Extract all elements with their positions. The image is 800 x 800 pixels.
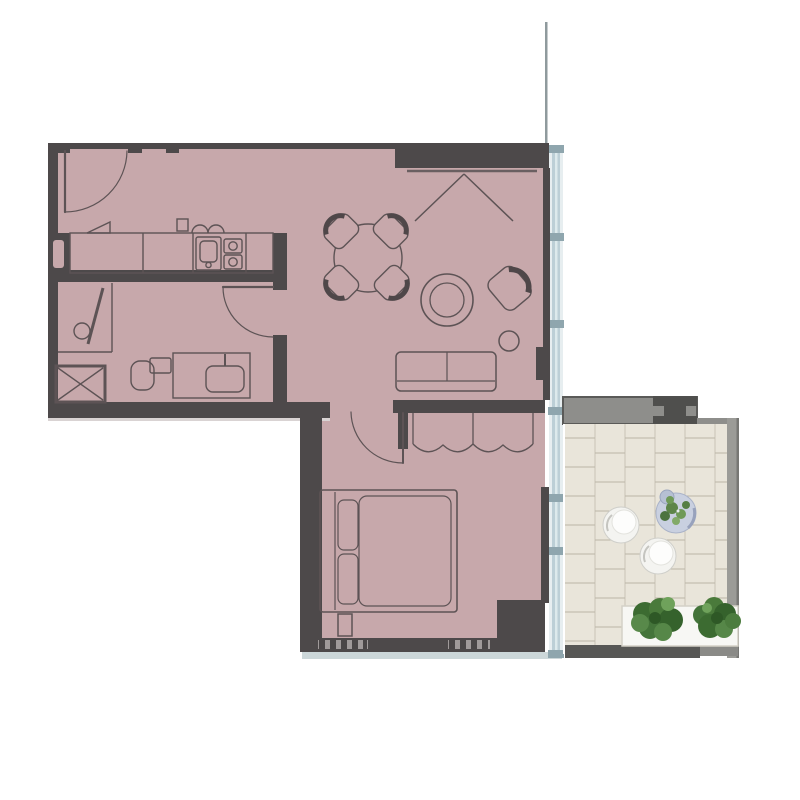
bush-leaf <box>711 612 723 624</box>
leaf <box>672 517 680 525</box>
leaf-highlight <box>677 510 680 513</box>
wall-right-stub <box>536 347 550 380</box>
door-jamb-tick <box>166 143 179 153</box>
balcony <box>563 396 741 658</box>
bush-leaf <box>631 614 649 632</box>
wall-shadow-band <box>48 418 330 421</box>
wall-top-right-block <box>395 143 549 168</box>
wall-bedroom-left <box>300 405 322 652</box>
leaf <box>660 511 670 521</box>
wall-bedroom-right-thin <box>541 487 549 603</box>
wall-living-bottom <box>393 400 545 413</box>
balcony-lounge-chair <box>640 538 676 574</box>
shaft-inner-slot <box>53 240 64 268</box>
leaf <box>666 496 674 504</box>
wall-bath-bottom <box>48 402 330 418</box>
mullion <box>548 547 564 555</box>
lounge-chair-inner <box>649 541 673 565</box>
glass-facade <box>548 145 564 658</box>
column-waist <box>664 406 686 417</box>
bush-leaf <box>702 603 712 613</box>
leaf <box>682 501 690 509</box>
bush-leaf <box>661 597 675 611</box>
bush-leaf <box>654 623 672 641</box>
wall-top <box>48 143 400 149</box>
balcony-bottom-wall <box>565 645 700 658</box>
floor-plan-drawing <box>0 0 800 800</box>
mullion <box>548 407 564 415</box>
wall-kitchen-bath <box>48 270 287 282</box>
mullion <box>548 145 564 153</box>
wall-bath-right-upper <box>273 233 287 290</box>
bush-leaf <box>649 612 661 624</box>
lounge-chair-inner <box>612 510 636 534</box>
bush-leaf <box>725 613 741 629</box>
sofa <box>396 352 496 391</box>
column-top-bar <box>653 396 697 406</box>
mullion <box>548 650 564 658</box>
exterior-lower-band <box>302 652 562 659</box>
mullion <box>548 233 564 241</box>
door-jamb-tick <box>128 143 142 153</box>
column-bottom-bar <box>653 416 697 425</box>
mullion <box>548 320 564 328</box>
mullion <box>548 494 564 502</box>
glass-deck-gap <box>563 424 565 654</box>
balcony-lounge-chair <box>603 507 639 543</box>
glass-highlight <box>555 145 558 658</box>
exterior-boundary-line <box>545 22 548 148</box>
floor-plan-canvas <box>0 0 800 800</box>
sofa-outline <box>396 352 496 391</box>
